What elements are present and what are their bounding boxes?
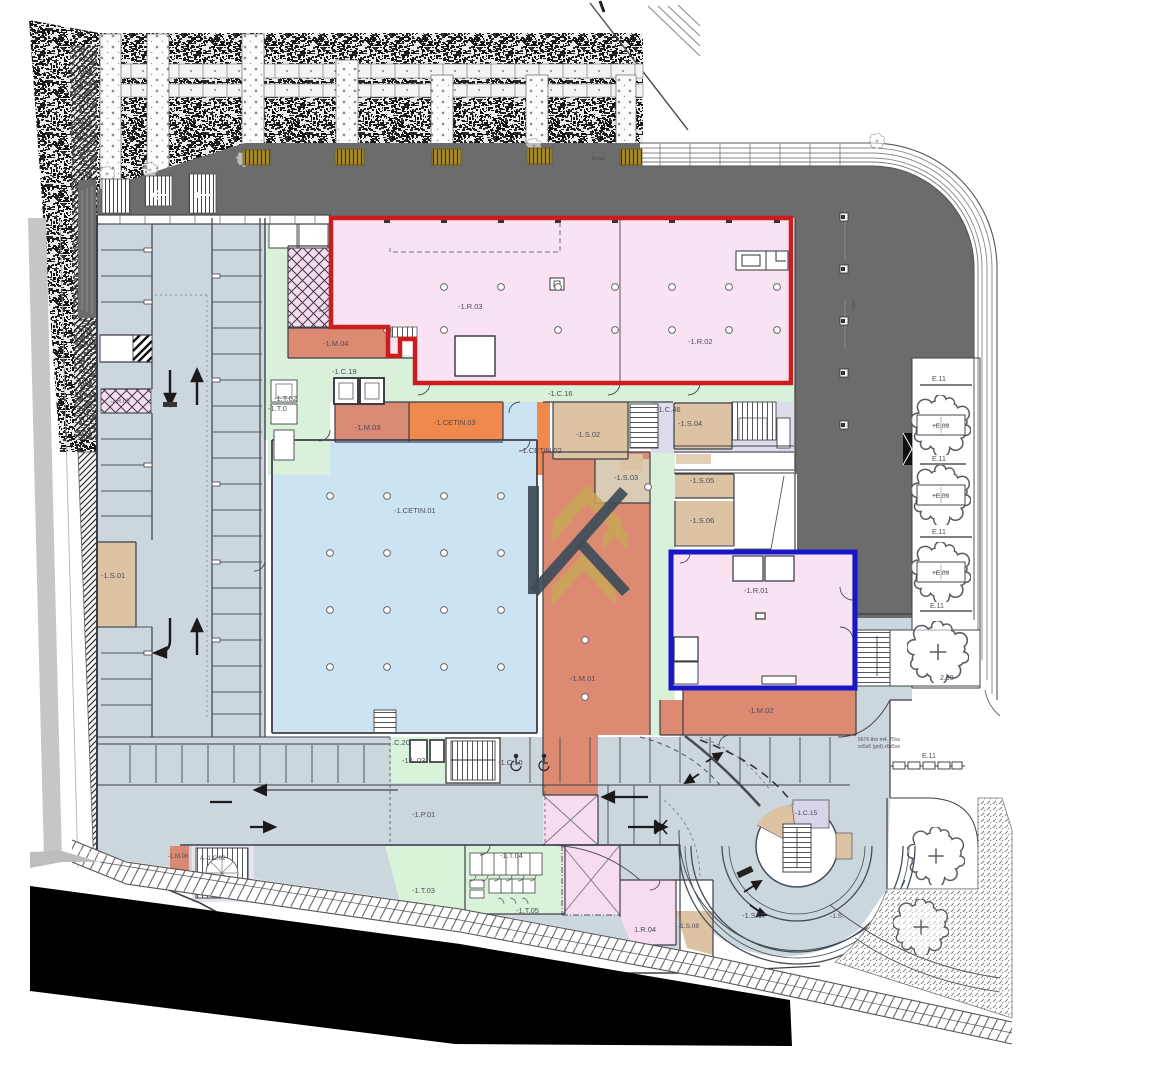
svg-text:E.11: E.11: [932, 529, 946, 536]
svg-text:+E.09: +E.09: [932, 493, 950, 500]
svg-text:-1.P.01: -1.P.01: [412, 810, 435, 819]
svg-text:-1.T.02: -1.T.02: [274, 394, 297, 403]
svg-text:-1.C.46: -1.C.46: [656, 405, 681, 414]
svg-text:-1.T.05: -1.T.05: [516, 906, 539, 915]
svg-text:-1.M.03: -1.M.03: [355, 423, 380, 432]
svg-text:-1.S.: -1.S.: [830, 913, 844, 920]
svg-text:-1.R.02: -1.R.02: [688, 337, 713, 346]
svg-text:E.11: E.11: [932, 456, 946, 463]
svg-text:-1.R.01: -1.R.01: [744, 586, 769, 595]
svg-text:-1.R.05: -1.R.05: [110, 399, 130, 405]
svg-text:-1.M.04: -1.M.04: [323, 339, 348, 348]
svg-text:5676 8xx m4. 70xx: 5676 8xx m4. 70xx: [858, 737, 900, 743]
svg-text:-1.C.10: -1.C.10: [498, 758, 523, 767]
svg-text:xx5x6 (grd) x0x5xx: xx5x6 (grd) x0x5xx: [858, 744, 900, 750]
svg-text:-1.R.03: -1.R.03: [458, 302, 483, 311]
svg-text:-1.S.04: -1.S.04: [678, 419, 702, 428]
svg-text:-1.S.02: -1.S.02: [576, 430, 600, 439]
svg-text:A.-1.C.02: A.-1.C.02: [200, 856, 226, 862]
svg-text:+E.09: +E.09: [932, 423, 950, 430]
svg-text:-1.S.08: -1.S.08: [678, 923, 699, 930]
svg-text:-1.CETIN.02: -1.CETIN.02: [520, 446, 562, 455]
svg-text:-1.L.03: -1.L.03: [402, 756, 425, 765]
svg-text:E.11: E.11: [922, 753, 936, 760]
svg-text:-1.T.04: -1.T.04: [500, 851, 523, 860]
svg-text:Emaa: Emaa: [592, 156, 605, 162]
svg-text:E.11: E.11: [930, 603, 944, 610]
svg-text:-1.S.05: -1.S.05: [690, 476, 714, 485]
svg-text:-1.S.01: -1.S.01: [101, 571, 125, 580]
svg-text:E.11: E.11: [932, 376, 946, 383]
svg-text:-1.M.06: -1.M.06: [168, 854, 189, 860]
svg-text:-1.S.03: -1.S.03: [614, 473, 638, 482]
svg-text:1.R.04: 1.R.04: [634, 925, 656, 934]
svg-text:-1.M.02: -1.M.02: [748, 706, 773, 715]
svg-text:-1.C.15: -1.C.15: [795, 810, 818, 817]
svg-text:+E.09: +E.09: [932, 570, 950, 577]
svg-text:xxxx: xxxx: [850, 300, 856, 311]
svg-text:-1.S.06: -1.S.06: [690, 516, 714, 525]
svg-text:-1.C.19: -1.C.19: [332, 367, 357, 376]
svg-text:-1.CETIN.03: -1.CETIN.03: [434, 418, 476, 427]
svg-text:2.99: 2.99: [940, 675, 954, 682]
svg-text:-1.T.03: -1.T.03: [412, 886, 435, 895]
svg-text:-1.CETIN.01: -1.CETIN.01: [394, 506, 436, 515]
svg-text:-1.C.16: -1.C.16: [548, 389, 573, 398]
svg-text:-1.M.01: -1.M.01: [570, 674, 595, 683]
svg-text:-1.S.07: -1.S.07: [742, 911, 766, 920]
svg-text:-1.T.0: -1.T.0: [268, 404, 287, 413]
svg-text:.C.20: .C.20: [392, 738, 410, 747]
